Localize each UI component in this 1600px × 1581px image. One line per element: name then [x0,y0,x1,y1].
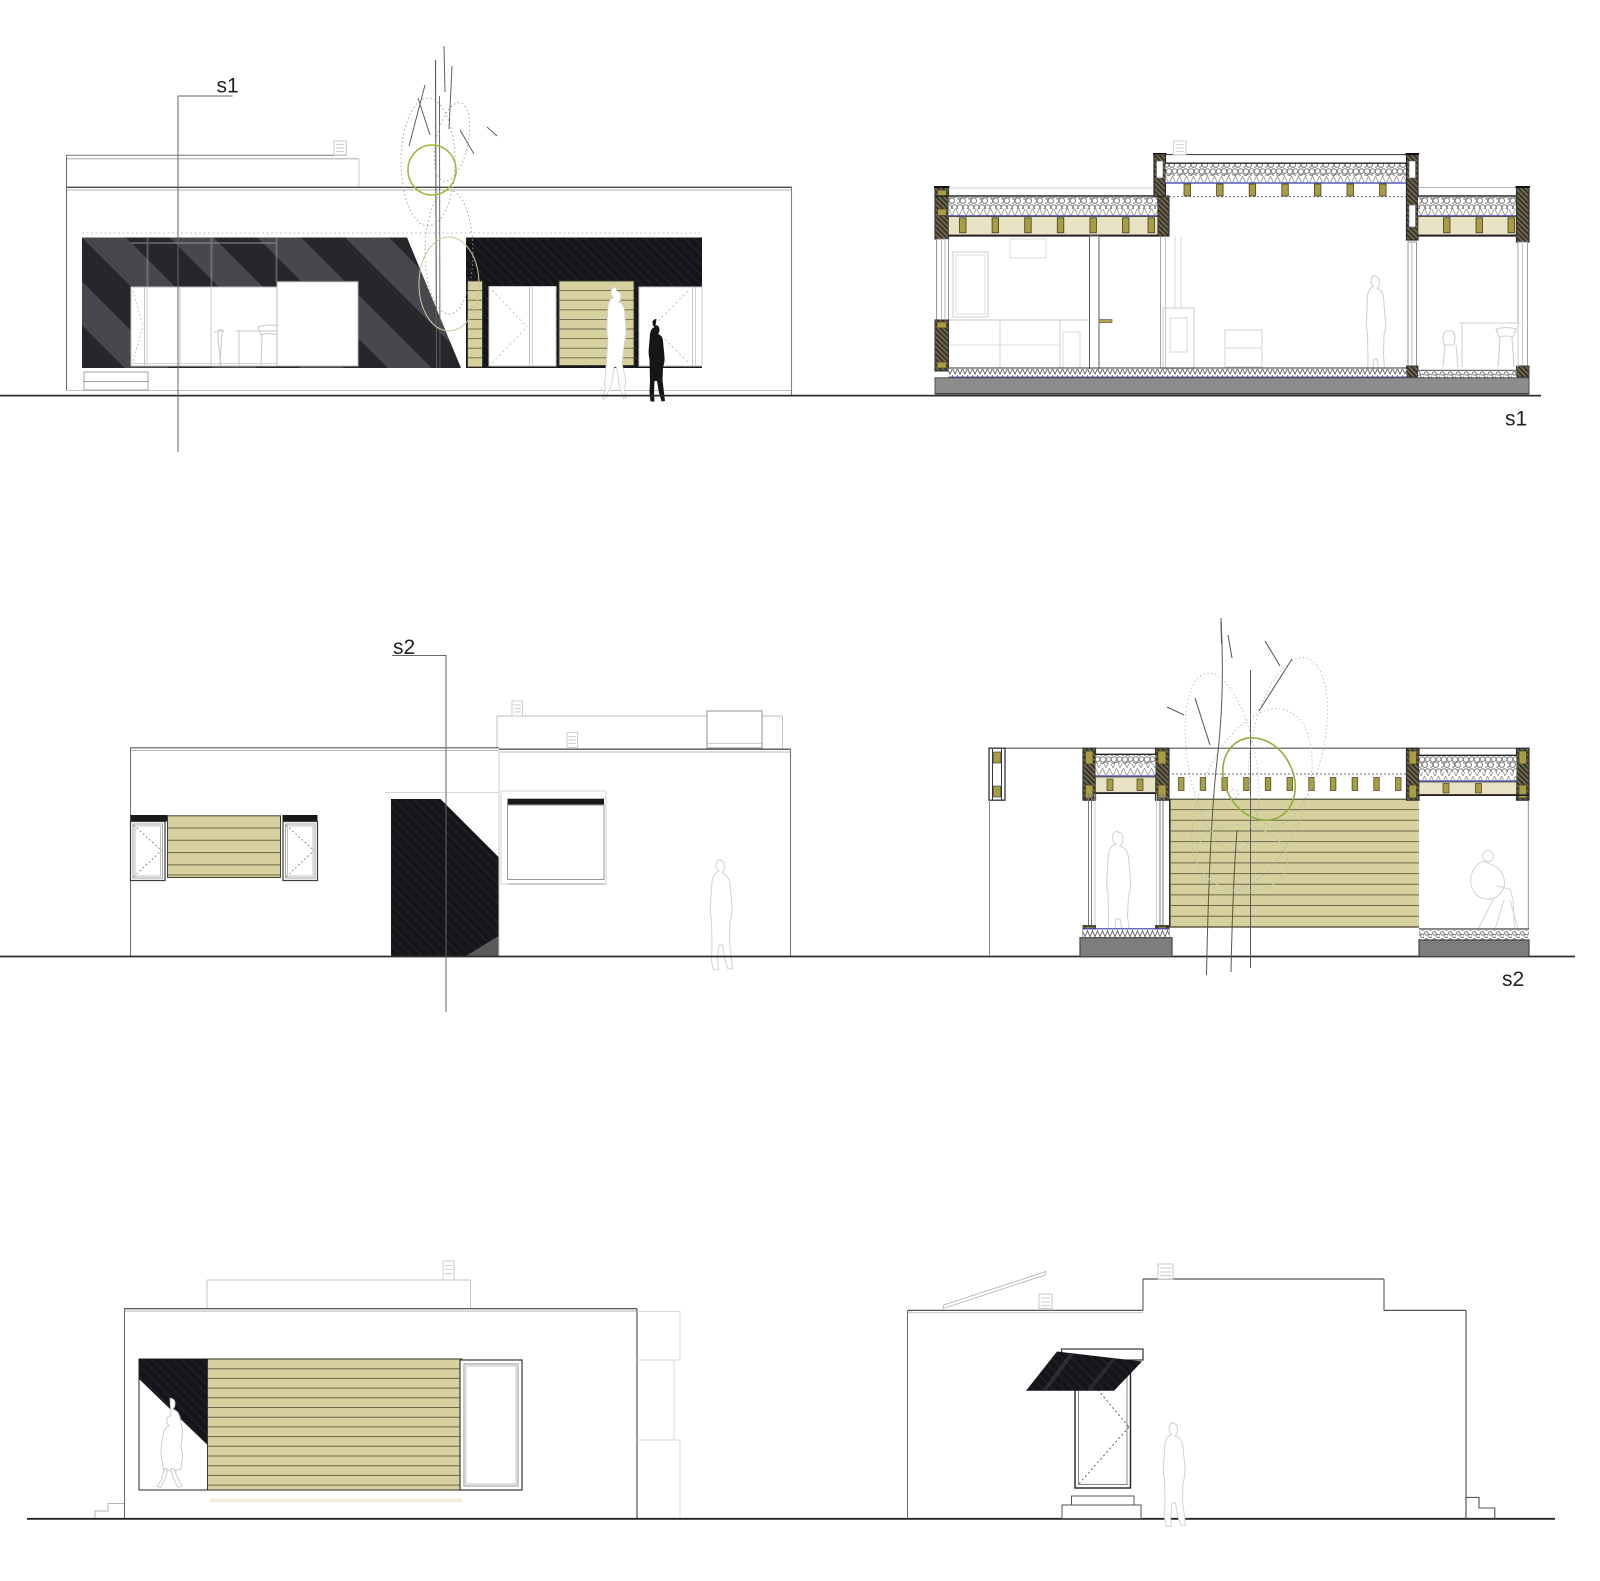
svg-text:s1: s1 [1505,408,1527,431]
svg-text:s2: s2 [1502,968,1524,991]
svg-text:s2: s2 [393,636,415,659]
svg-text:s1: s1 [217,75,239,98]
